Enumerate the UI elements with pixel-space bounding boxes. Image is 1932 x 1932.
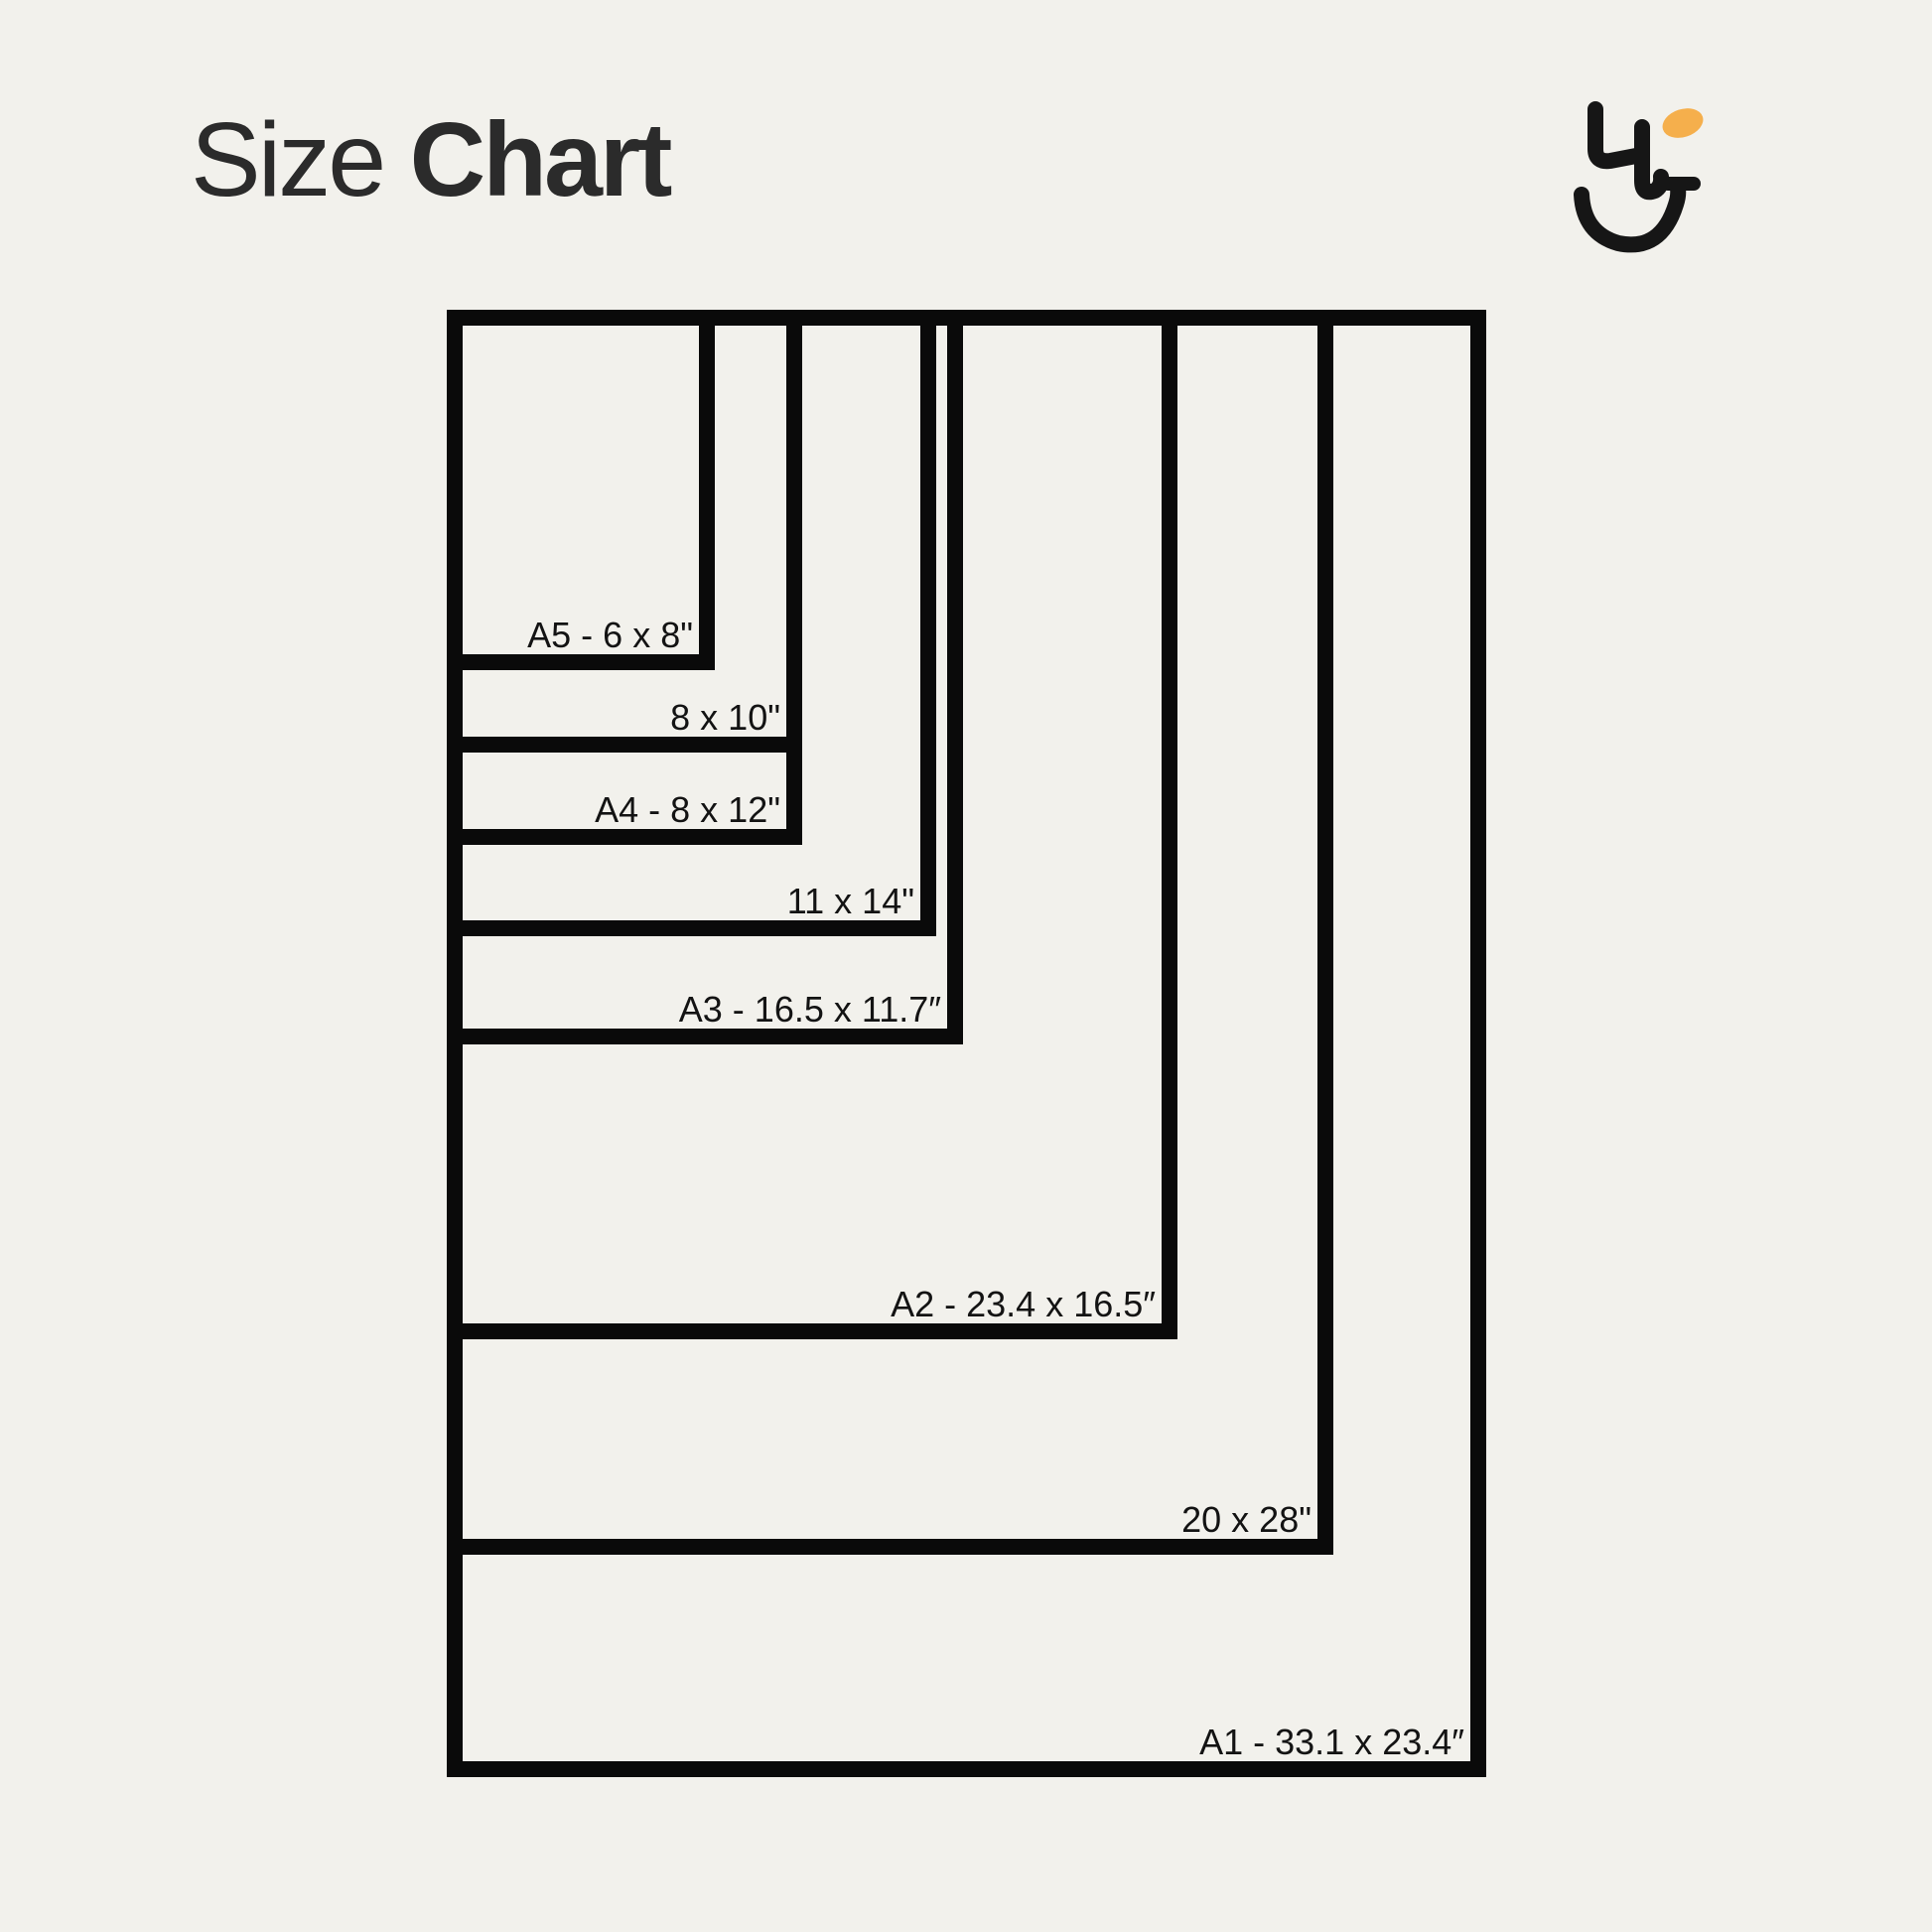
size-label-11x14: 11 x 14" (787, 884, 914, 919)
page-title-regular: Size (191, 101, 383, 218)
logo-h-stroke (1595, 109, 1636, 161)
size-label-a5: A5 - 6 x 8" (527, 618, 693, 653)
size-rect-a5: A5 - 6 x 8" (447, 310, 715, 670)
size-label-a3: A3 - 16.5 x 11.7″ (679, 992, 941, 1028)
size-label-8x10: 8 x 10" (670, 700, 780, 736)
size-label-a4: A4 - 8 x 12" (595, 792, 780, 828)
size-chart-page: Size Chart A1 - 33.1 x 23.4″ 20 x 28" A2… (0, 0, 1932, 1932)
logo-accent-dot (1659, 103, 1708, 143)
size-label-a2: A2 - 23.4 x 16.5″ (891, 1287, 1156, 1322)
page-title: Size Chart (191, 107, 669, 212)
size-label-a1: A1 - 33.1 x 23.4″ (1199, 1725, 1464, 1760)
logo-smile-stroke (1582, 189, 1678, 244)
page-title-bold: Chart (410, 101, 670, 218)
smiley-hu-monogram-icon (1569, 93, 1710, 254)
size-label-20x28: 20 x 28" (1181, 1502, 1311, 1538)
logo-u-stroke (1642, 127, 1661, 192)
